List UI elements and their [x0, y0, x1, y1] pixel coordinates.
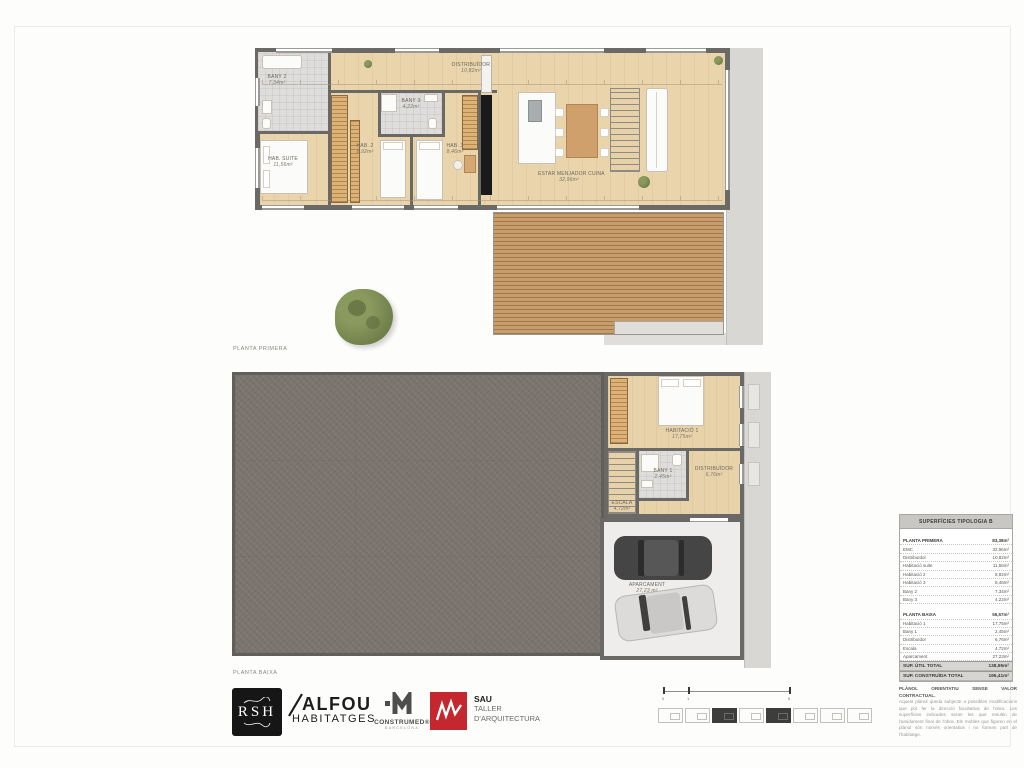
- table-row: Escala4,72m²: [900, 645, 1012, 653]
- row-label: Distribuïdor: [903, 637, 926, 642]
- paving-right-top-plan: [726, 48, 763, 345]
- paving-right-bottom-plan: [744, 372, 771, 668]
- scale-bar-line: [663, 691, 790, 692]
- garage-door-opening: [690, 518, 728, 522]
- chair: [600, 148, 609, 157]
- wall: [442, 92, 445, 137]
- key-plan: [658, 708, 872, 723]
- tree-foliage: [348, 300, 366, 316]
- row-value: 6,76m²: [995, 637, 1009, 642]
- construmed-subname: BARCELONA: [374, 726, 430, 730]
- scale-tick: [688, 687, 690, 694]
- room-area: 10,82m²: [461, 68, 481, 74]
- room-area: 4,72m²: [614, 506, 631, 512]
- row-value: 83,38m²: [992, 538, 1009, 543]
- room-label-hab1: HABITACIÓ 1 17,75m²: [652, 428, 712, 440]
- window-reveal: [748, 422, 760, 448]
- rsh-logo-text: RSH: [238, 705, 276, 720]
- table-row: Aparcament27,23m²: [900, 653, 1012, 661]
- sau-line3: D'ARQUITECTURA: [474, 714, 540, 724]
- sofa: [646, 88, 668, 172]
- desk: [464, 155, 476, 173]
- car-dark-roof: [644, 540, 678, 576]
- key-plan-unit: [820, 708, 845, 723]
- row-value: 17,75m²: [992, 621, 1009, 626]
- key-plan-unit-highlighted: [766, 708, 791, 723]
- sau-logo: SAU TALLER D'ARQUITECTURA: [430, 692, 540, 730]
- window: [352, 205, 404, 210]
- row-value: 10,82m²: [992, 555, 1009, 560]
- table-row: Distribuïdor6,76m²: [900, 636, 1012, 644]
- row-label: EMC: [903, 547, 913, 552]
- sofa-cushion-line: [656, 92, 657, 168]
- car-dark-windshield: [638, 540, 644, 576]
- window: [276, 48, 332, 53]
- wall: [258, 131, 328, 134]
- sink: [641, 480, 653, 488]
- disclaimer-title: PLÀNOL ORIENTATIU SENSE VALOR CONTRACTUA…: [899, 686, 1017, 699]
- construmed-name: CONSTRUMED®: [374, 719, 430, 726]
- chair: [555, 148, 564, 157]
- table-row: Habitació 38,46m²: [900, 579, 1012, 587]
- rsh-script-bottom-icon: [242, 720, 272, 728]
- scale-tick: [663, 687, 665, 694]
- table-spacer: [900, 604, 1012, 611]
- shower: [381, 94, 397, 112]
- table-row: Distribuïdor10,82m²: [900, 554, 1012, 562]
- row-label: PLANTA PRIMERA: [903, 538, 943, 543]
- dining-table: [566, 104, 598, 158]
- key-plan-unit-highlighted: [712, 708, 737, 723]
- scale-tick-label: 0: [662, 696, 664, 701]
- table-row: Bany 27,34m²: [900, 587, 1012, 595]
- row-label: Bany 2: [903, 589, 917, 594]
- kitchen-counter: [481, 95, 492, 195]
- pillow: [383, 142, 403, 150]
- room-label-estar: ESTAR MENJADOR CUINA 32,96m²: [538, 171, 600, 183]
- sau-name: SAU: [474, 694, 540, 704]
- rsh-logo: RSH: [232, 688, 282, 736]
- chair: [555, 128, 564, 137]
- key-plan-unit: [847, 708, 872, 723]
- row-label: PLANTA BAIXA: [903, 612, 936, 617]
- key-plan-unit: [793, 708, 818, 723]
- car-silver-roof: [646, 592, 685, 634]
- room-label-distribuidor-baixa: DISTRIBUÏDOR 6,76m²: [688, 466, 740, 478]
- wardrobe: [331, 95, 348, 203]
- row-label: Habitació 1: [903, 621, 926, 626]
- deck-cutout: [614, 321, 723, 334]
- row-label: Bany 1: [903, 629, 917, 634]
- chair: [453, 160, 463, 170]
- row-label: Habitació 2: [903, 572, 926, 577]
- ground-fill: [232, 372, 604, 656]
- room-area: 17,75m²: [672, 434, 692, 440]
- island-sink: [528, 100, 542, 122]
- wardrobe: [462, 95, 478, 150]
- pillow: [263, 170, 270, 188]
- alfou-subname: HABITATGES: [292, 713, 376, 725]
- room-area: 11,56m²: [273, 162, 292, 168]
- alfou-logo: ALFOU HABITATGES: [292, 695, 376, 725]
- scale-tick-label: 1: [687, 696, 689, 701]
- row-label: Escala: [903, 646, 917, 651]
- table-row: Habitació 117,75m²: [900, 620, 1012, 628]
- table-row: Habitació 28,92m²: [900, 571, 1012, 579]
- tree-foliage: [366, 316, 380, 329]
- table-row: Habitació suite11,56m²: [900, 562, 1012, 570]
- pillow: [419, 142, 440, 150]
- room-label-suite: HAB. SUITE 11,56m²: [258, 156, 308, 168]
- areas-table: SUPERFÍCIES TIPOLOGIA B PLANTA PRIMERA83…: [899, 514, 1013, 682]
- fridge: [481, 55, 492, 93]
- row-label: Distribuïdor: [903, 555, 926, 560]
- row-label: Habitació suite: [903, 563, 933, 568]
- disclaimer: PLÀNOL ORIENTATIU SENSE VALOR CONTRACTUA…: [899, 686, 1017, 738]
- row-value: 7,34m²: [995, 589, 1009, 594]
- row-label: SUP. ÚTIL TOTAL: [903, 664, 942, 669]
- row-value: 55,57m²: [992, 612, 1009, 617]
- room-area: 32,96m²: [559, 177, 579, 183]
- key-plan-unit: [739, 708, 764, 723]
- row-value: 11,56m²: [993, 563, 1009, 568]
- plant: [714, 56, 723, 65]
- room-label-escala: ESCALA 4,72m²: [606, 500, 638, 512]
- sau-signature-icon: [434, 696, 464, 726]
- key-plan-unit: [658, 708, 683, 723]
- window: [739, 386, 744, 408]
- row-value: 4,22m²: [995, 597, 1009, 602]
- terrace-deck: [493, 212, 724, 335]
- areas-table-title: SUPERFÍCIES TIPOLOGIA B: [900, 515, 1012, 529]
- room-area: 4,22m²: [403, 104, 420, 110]
- sau-line2: TALLER: [474, 704, 540, 714]
- row-value: 138,95m²: [988, 664, 1009, 669]
- room-area: 8,92m²: [357, 149, 374, 155]
- row-value: 8,92m²: [995, 572, 1009, 577]
- wall: [331, 90, 497, 93]
- window: [725, 70, 730, 190]
- window: [646, 48, 706, 53]
- row-value: 27,23m²: [992, 654, 1009, 659]
- caption-planta-baixa: PLANTA BAIXA: [233, 670, 277, 676]
- pillow: [683, 379, 701, 387]
- sink: [262, 100, 272, 114]
- car-dark-rear-glass: [679, 540, 684, 576]
- key-plan-unit: [685, 708, 710, 723]
- scale-tick-label: 5: [788, 696, 790, 701]
- pillow: [661, 379, 679, 387]
- row-label: SUP. CONSTRUÏDA TOTAL: [903, 674, 964, 679]
- window: [262, 205, 304, 210]
- table-row: EMC32,96m²: [900, 545, 1012, 553]
- stairs: [610, 88, 640, 172]
- alfou-slash-icon: [288, 693, 304, 717]
- toilet: [262, 118, 271, 129]
- caption-planta-primera: PLANTA PRIMERA: [233, 346, 287, 352]
- toilet: [672, 454, 682, 466]
- room-label-bany3: BANY 3 4,22m²: [396, 98, 426, 110]
- table-row: PLANTA BAIXA55,57m²: [900, 611, 1012, 619]
- chair: [600, 128, 609, 137]
- room-area: 27,23 m²: [636, 588, 657, 594]
- sau-text: SAU TALLER D'ARQUITECTURA: [474, 692, 540, 730]
- bathtub: [262, 55, 302, 69]
- room-area: 2,45m²: [655, 474, 672, 480]
- room-label-aparcament: APARCAMENT 27,23 m²: [624, 582, 670, 594]
- sliding-glass-door: [497, 205, 639, 210]
- room-label-hab3: HAB. 3 8,46m²: [444, 143, 466, 155]
- sau-signature-box: [430, 692, 467, 730]
- wardrobe: [350, 120, 360, 203]
- plan-sheet: BANY 2 7,34m² HAB. SUITE 11,56m² DISTRIB…: [0, 0, 1024, 768]
- window: [414, 205, 458, 210]
- row-value: 32,96m²: [992, 547, 1009, 552]
- table-total-row: SUP. ÚTIL TOTAL138,95m²: [900, 661, 1012, 671]
- window-reveal: [748, 384, 760, 410]
- sink: [424, 94, 438, 102]
- window: [395, 48, 439, 53]
- room-area: 6,76m²: [706, 472, 723, 478]
- row-value: 195,41m²: [988, 674, 1009, 679]
- chair: [600, 108, 609, 117]
- row-value: 8,46m²: [995, 580, 1009, 585]
- window-reveal: [748, 462, 760, 486]
- plant: [638, 176, 650, 188]
- table-row: Bany 12,45m²: [900, 628, 1012, 636]
- chair: [555, 108, 564, 117]
- row-label: Aparcament: [903, 654, 927, 659]
- plant: [364, 60, 372, 68]
- scale-tick: [789, 687, 791, 694]
- construmed-m-icon: [385, 692, 419, 714]
- room-label-bany1: BANY 1 2,45m²: [646, 468, 680, 480]
- wall: [639, 498, 689, 501]
- construmed-logo: CONSTRUMED® BARCELONA: [374, 692, 430, 730]
- table-total-row: SUP. CONSTRUÏDA TOTAL195,41m²: [900, 671, 1012, 681]
- row-label: Bany 3: [903, 597, 917, 602]
- table-gap: [900, 529, 1012, 537]
- table-row: PLANTA PRIMERA83,38m²: [900, 537, 1012, 545]
- room-label-bany2: BANY 2 7,34m²: [252, 74, 302, 86]
- alfou-name: ALFOU: [292, 695, 376, 713]
- room-area: 8,46m²: [447, 149, 464, 155]
- row-value: 2,45m²: [995, 629, 1009, 634]
- toilet: [428, 118, 437, 129]
- wall: [410, 137, 413, 205]
- room-area: 7,34m²: [269, 80, 286, 86]
- wardrobe: [610, 378, 628, 444]
- table-row: Bany 34,22m²: [900, 596, 1012, 604]
- room-label-hab2: HAB. 2 8,92m²: [352, 143, 378, 155]
- window: [500, 48, 604, 53]
- row-value: 4,72m²: [995, 646, 1009, 651]
- row-label: Habitació 3: [903, 580, 926, 585]
- room-label-distribuidor: DISTRIBUÏDOR 10,82m²: [446, 62, 496, 74]
- window: [255, 148, 260, 188]
- dimension-line: [262, 80, 722, 85]
- window: [739, 424, 744, 446]
- disclaimer-body: Aquest plànol queda subjecte a possibles…: [899, 699, 1017, 737]
